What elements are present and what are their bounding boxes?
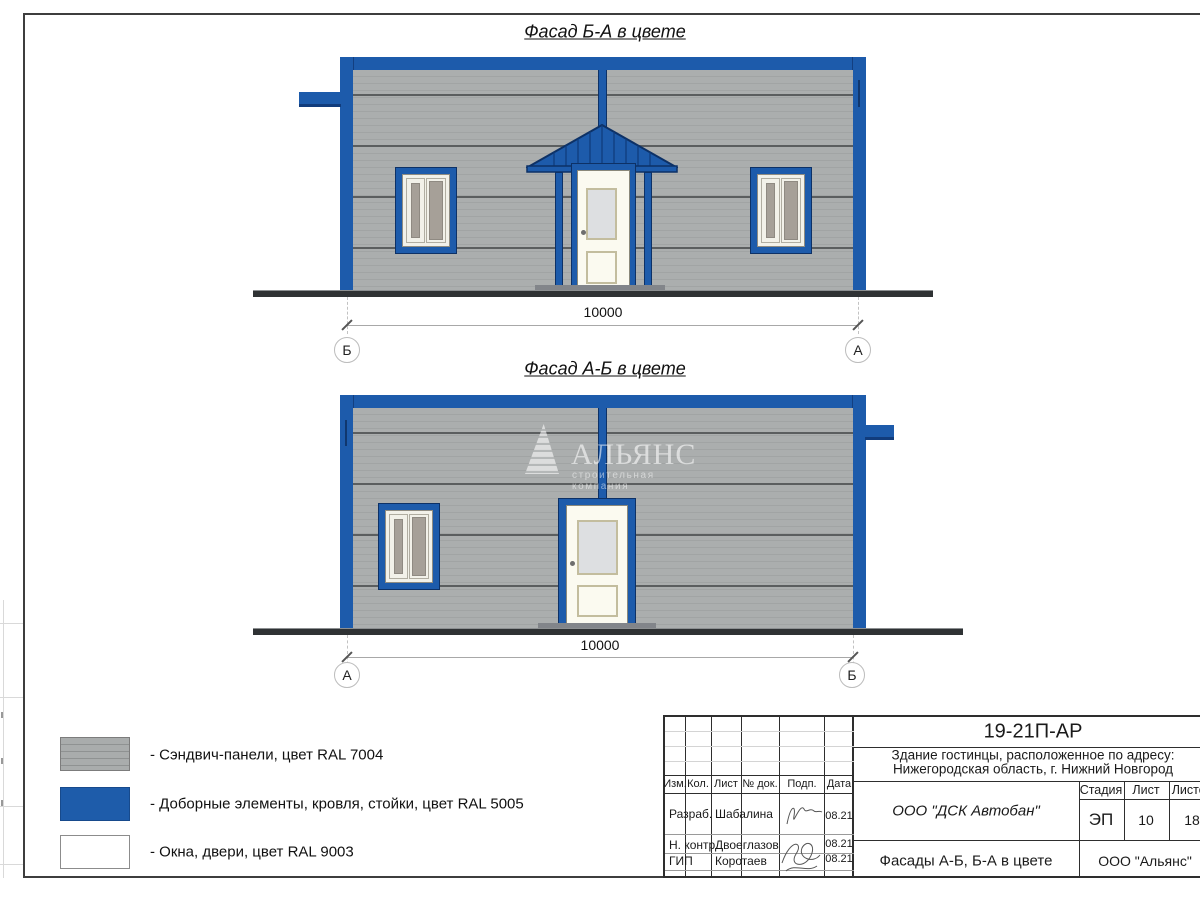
signature-ncontrol-gip	[777, 833, 829, 877]
legend-swatch-panels	[60, 737, 130, 771]
axis-marker-a: А	[845, 337, 871, 363]
column-seam	[858, 80, 860, 107]
gutter-outlet-right	[865, 425, 894, 440]
axis-marker-a: А	[334, 662, 360, 688]
legend-swatch-blue-elements	[60, 787, 130, 821]
window-glass	[411, 183, 420, 238]
tb-col-date: Дата	[827, 778, 851, 790]
titleblock: 19-21П-АР Здание гостинцы, расположенное…	[663, 715, 1200, 878]
window-sash	[761, 178, 780, 243]
tb-sheets-header: Листов	[1172, 783, 1200, 797]
door-handle	[570, 561, 575, 566]
tb-date-gip: 08.21	[825, 853, 853, 865]
door-glazing	[586, 188, 617, 240]
drawing-sheet: Фасад Б-А в цвете	[0, 0, 1200, 900]
legend-label-blue-elements: - Доборные элементы, кровля, стойки, цве…	[150, 796, 524, 813]
porch-post-right	[644, 172, 652, 290]
tb-date-ncontrol: 08.21	[825, 838, 853, 850]
tb-name-gip: Коротаев	[715, 854, 767, 868]
tb-name-developer: Шабалина	[715, 807, 773, 821]
tb-stage-header: Стадия	[1080, 783, 1123, 797]
window-sash	[389, 514, 408, 579]
window-glass	[784, 181, 798, 240]
facade1-building	[340, 57, 866, 290]
dimension-line	[347, 325, 858, 326]
tb-grid-line	[665, 731, 854, 732]
margin-mark	[1, 800, 3, 806]
tb-role-developer: Разраб.	[669, 807, 712, 821]
dimension-label: 10000	[584, 304, 623, 320]
window-frame	[757, 174, 805, 247]
facade2-title: Фасад А-Б в цвете	[524, 359, 686, 380]
window-glass	[766, 183, 775, 238]
window-sash	[426, 178, 446, 243]
tb-drawing-title: Фасады А-Б, Б-А в цвете	[880, 853, 1053, 870]
tb-role-ncontrol: Н. контр.	[669, 838, 719, 852]
alliance-logo-icon	[525, 424, 559, 474]
tb-sheets-value: 18	[1184, 812, 1200, 828]
corner-column-left	[340, 57, 353, 290]
tb-grid-line	[1124, 781, 1125, 840]
watermark-name: АЛЬЯНС	[571, 438, 696, 472]
tb-grid-line	[1079, 799, 1200, 800]
tb-project-line1: Здание гостинцы, расположенное по адресу…	[892, 748, 1175, 763]
roof-band	[340, 57, 866, 70]
window-sash	[409, 514, 429, 579]
tb-grid-line	[854, 840, 1200, 841]
tb-sheet-value: 10	[1138, 812, 1154, 828]
door-panel	[577, 585, 618, 617]
watermark: АЛЬЯНС строительная компания	[523, 420, 713, 482]
window-sash	[406, 178, 425, 243]
tb-grid-line	[1169, 781, 1170, 840]
ground-line	[253, 628, 963, 635]
legend-swatch-windows-doors	[60, 835, 130, 869]
tb-project-line2: Нижегородская область, г. Нижний Новгоро…	[893, 762, 1173, 777]
dimension-label: 10000	[581, 637, 620, 653]
window-frame	[385, 510, 433, 583]
tb-sheet-header: Лист	[1132, 783, 1159, 797]
margin-line	[0, 806, 23, 807]
legend-label-windows-doors: - Окна, двери, цвет RAL 9003	[150, 844, 354, 861]
tb-col-kol: Кол.	[687, 778, 709, 790]
axis-marker-b: Б	[839, 662, 865, 688]
margin-line	[0, 697, 23, 698]
margin-mark	[1, 712, 3, 718]
window-right	[750, 167, 812, 254]
door-glazing	[577, 520, 618, 575]
legend-label-panels: - Сэндвич-панели, цвет RAL 7004	[150, 747, 383, 764]
margin-line	[3, 600, 4, 878]
signature-developer	[781, 796, 825, 834]
tb-grid-line	[854, 781, 1200, 782]
tb-col-podp: Подп.	[787, 778, 816, 790]
extension-line	[858, 297, 859, 334]
door-handle	[581, 230, 586, 235]
window-glass	[394, 519, 403, 574]
tb-grid-line	[665, 761, 854, 762]
margin-line	[0, 623, 23, 624]
tb-date-developer: 08.21	[825, 810, 853, 822]
tb-name-ncontrol: Двоеглазов	[715, 838, 779, 852]
gutter-outlet-left	[299, 92, 341, 107]
porch-post-left	[555, 172, 563, 290]
watermark-subtitle: строительная компания	[572, 470, 713, 492]
window-left	[395, 167, 457, 254]
tb-stage-value: ЭП	[1089, 810, 1113, 830]
roof-band	[340, 395, 866, 408]
tb-role-gip: ГИП	[669, 854, 693, 868]
dimension-line	[347, 657, 853, 658]
tb-col-izm: Изм.	[663, 778, 687, 790]
window-glass	[429, 181, 443, 240]
column-seam	[345, 420, 347, 446]
tb-doc-number: 19-21П-АР	[984, 721, 1083, 744]
tb-col-doc: № док.	[742, 778, 777, 790]
tb-grid-line	[665, 793, 854, 794]
extension-line	[347, 297, 348, 334]
window-glass	[412, 517, 426, 576]
tb-org: ООО "Альянс"	[1098, 853, 1192, 869]
axis-marker-b: Б	[334, 337, 360, 363]
tb-contractor: ООО "ДСК Автобан"	[892, 803, 1040, 820]
tb-grid-line	[665, 746, 854, 747]
window-left	[378, 503, 440, 590]
downpipe	[598, 70, 607, 130]
margin-line	[0, 864, 23, 865]
window-frame	[402, 174, 450, 247]
door-panel	[586, 251, 617, 284]
window-sash	[781, 178, 801, 243]
margin-mark	[1, 758, 3, 764]
tb-grid-line	[665, 775, 854, 776]
ground-line	[253, 290, 933, 297]
facade1-title: Фасад Б-А в цвете	[524, 22, 686, 43]
tb-col-list: Лист	[714, 778, 738, 790]
